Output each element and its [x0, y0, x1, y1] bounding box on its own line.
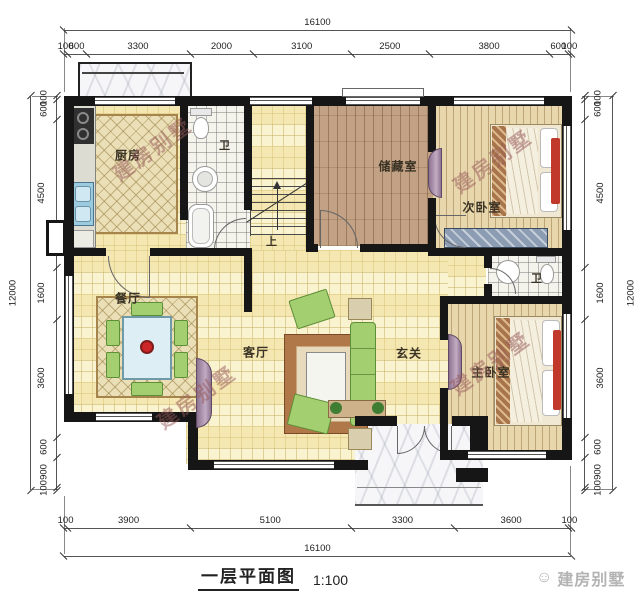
door-line [149, 256, 150, 298]
window-sill [342, 88, 424, 97]
toilet-bowl [193, 117, 209, 139]
extension-line [570, 466, 571, 554]
window [454, 97, 544, 105]
wall [440, 388, 448, 458]
wall [456, 468, 488, 482]
room-label-bedroom2: 次卧室 [462, 199, 501, 216]
door-leaf [428, 148, 442, 198]
dim-segment: 3300 [351, 514, 455, 528]
door-line [320, 210, 321, 248]
bed-red-throw [551, 138, 560, 204]
porch-step-line [357, 487, 481, 488]
wall [64, 248, 106, 256]
window [65, 276, 73, 394]
wall [306, 244, 318, 252]
bed-red-throw [553, 330, 561, 410]
window [563, 314, 571, 418]
wall [360, 244, 436, 252]
wall [244, 250, 252, 312]
sink-basin [75, 186, 91, 202]
bathtub-inner [192, 208, 210, 244]
room-label-storage: 储藏室 [378, 158, 417, 175]
room-label-foyer: 玄关 [396, 345, 422, 362]
room-label-bath1: 卫 [219, 137, 231, 153]
wall [452, 416, 488, 426]
dim-segment: 16100 [64, 542, 571, 556]
dim-segment: 2500 [351, 40, 430, 54]
extension-line [64, 28, 65, 92]
stairs-direction-line [277, 188, 278, 230]
bath-sink-basin [197, 171, 213, 187]
brand-logo: ☺ 建房别墅 [536, 566, 625, 590]
dining-chair [106, 320, 120, 346]
extension-line [570, 28, 571, 92]
dim-right-total: 12000 [612, 96, 613, 490]
dim-top-total: 16100 [64, 16, 571, 31]
room-label-bath2: 卫 [531, 270, 543, 286]
dining-chair [174, 352, 188, 378]
room-label-dining: 餐厅 [115, 290, 141, 307]
table-flower [140, 340, 154, 354]
dim-left-total: 12000 [30, 96, 31, 490]
dim-segment: 5100 [190, 514, 351, 528]
stairs-direction-arrow [273, 181, 281, 189]
dim-segment: 100 [568, 514, 571, 528]
dim-segment: 3800 [429, 40, 549, 54]
plant [372, 402, 384, 414]
dim-bottom-segments: 1003900510033003600100 [64, 514, 571, 529]
stove-burner [77, 128, 89, 140]
plant [330, 402, 342, 414]
dim-right-segments: 100600450016003600600900100 [584, 96, 585, 490]
wall [440, 296, 572, 304]
wall [440, 296, 448, 340]
terrace-rail-line [82, 72, 184, 74]
window [468, 451, 546, 459]
page-title: 一层平面图 [198, 562, 299, 591]
toilet [190, 108, 212, 116]
smiley-logo-icon: ☺ [536, 570, 552, 586]
brand-name: 建房别墅 [557, 566, 625, 590]
door-line [434, 215, 466, 216]
dim-bottom-total: 16100 [64, 542, 571, 557]
wall [484, 256, 492, 268]
door-line [397, 426, 398, 454]
dim-segment: 3300 [86, 40, 190, 54]
window [563, 126, 571, 230]
dim-segment: 3100 [253, 40, 351, 54]
window [96, 413, 152, 421]
drawing-title: 一层平面图 1:100 [198, 562, 348, 591]
dim-segment: 2000 [190, 40, 253, 54]
sofa-side-table [348, 428, 372, 450]
flue [46, 220, 66, 256]
stove-burner [77, 112, 89, 124]
wall [484, 284, 492, 296]
window [214, 461, 334, 469]
dim-segment: 3900 [67, 514, 190, 528]
scale-label: 1:100 [313, 572, 348, 591]
dim-top-segments: 10060033002000310025003800600100 [64, 40, 571, 55]
dining-chair [106, 352, 120, 378]
room-label-living: 客厅 [243, 344, 269, 361]
wall [150, 248, 252, 256]
dim-segment: 16100 [64, 16, 571, 30]
dim-segment: 600 [67, 40, 86, 54]
floor-plan-page: 16100 10060033002000310025003800600100 1… [0, 0, 640, 600]
window [250, 97, 312, 105]
wall [355, 416, 397, 426]
kitchen-cabinet [72, 230, 94, 248]
dim-left-segments: 100600450016003600600900100 [56, 96, 57, 490]
dim-segment: 100 [568, 40, 571, 54]
stairs-up-label: 上 [266, 233, 278, 249]
sofa-side-table [348, 298, 372, 320]
toilet [536, 256, 556, 263]
sink-basin [75, 206, 91, 222]
dining-chair [131, 382, 163, 396]
wall [428, 96, 436, 152]
wall [244, 96, 252, 210]
window [95, 97, 175, 105]
wall [306, 96, 314, 252]
window [346, 97, 420, 105]
dim-segment: 3600 [454, 514, 567, 528]
wall [428, 248, 572, 256]
dining-chair [174, 320, 188, 346]
